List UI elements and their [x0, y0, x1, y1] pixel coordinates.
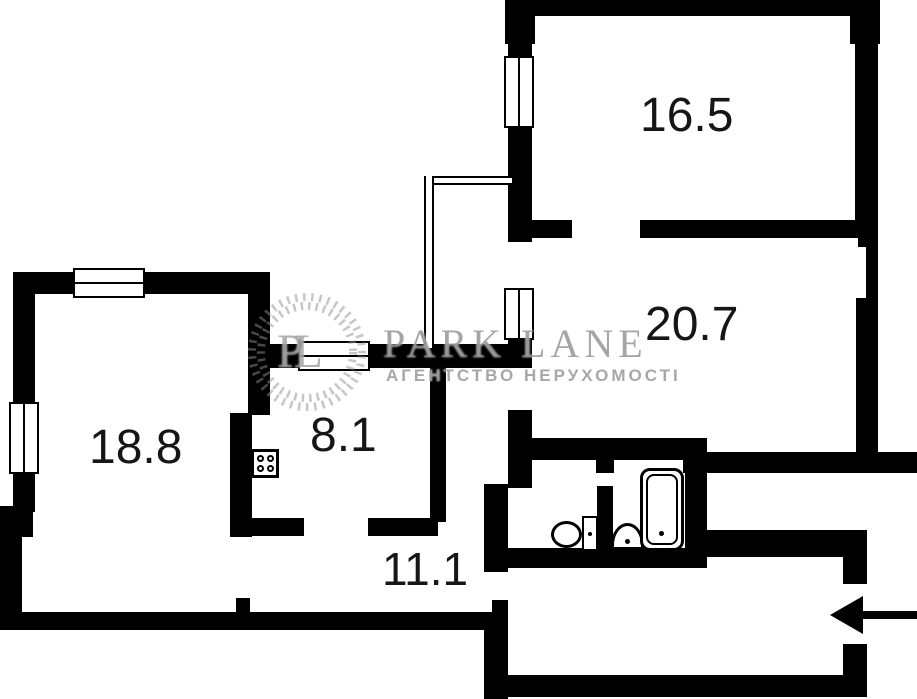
wall: [13, 272, 35, 512]
window-icon: [504, 288, 534, 340]
wall: [505, 0, 880, 16]
window-icon: [73, 268, 145, 298]
wall: [685, 438, 707, 560]
wall: [248, 344, 532, 368]
wall: [843, 530, 867, 584]
entrance-arrow-icon: [830, 596, 863, 634]
window-mullion: [23, 404, 25, 472]
balcony-railing: [424, 176, 434, 348]
wall: [430, 368, 446, 522]
wall: [0, 612, 508, 630]
floor-plan: 16.5 20.7 18.8 8.1 11.1 PL PARK LANE АГЕ…: [0, 0, 917, 699]
wall: [596, 455, 614, 473]
wall: [640, 220, 860, 238]
stove-icon: [251, 449, 279, 478]
window-mullion: [300, 355, 368, 357]
toilet-tank-icon: [582, 516, 598, 551]
wall: [492, 600, 508, 614]
wall: [484, 675, 867, 697]
wall: [855, 0, 878, 235]
wall: [530, 220, 572, 238]
wall: [703, 452, 917, 473]
wall: [866, 233, 878, 303]
room-label-11-1: 11.1: [382, 546, 468, 592]
window-mullion: [518, 58, 520, 126]
wall: [504, 548, 707, 568]
room-label-20-7: 20.7: [645, 301, 738, 349]
room-label-8-1: 8.1: [310, 412, 377, 460]
wall: [368, 518, 438, 536]
bathtub-icon: [640, 468, 684, 551]
wall: [0, 535, 22, 630]
wall: [230, 518, 304, 536]
entrance-arrow-tail: [861, 611, 917, 619]
window-mullion: [75, 282, 143, 284]
toilet-icon: [551, 521, 582, 548]
wall: [856, 298, 878, 458]
room-label-18-8: 18.8: [89, 424, 182, 472]
wall: [0, 506, 33, 537]
balcony-railing: [424, 176, 512, 185]
room-label-16-5: 16.5: [640, 92, 733, 140]
window-mullion: [518, 290, 520, 338]
window-icon: [9, 402, 39, 474]
wall: [236, 598, 250, 614]
window-icon: [298, 341, 370, 371]
window-icon: [504, 56, 534, 128]
